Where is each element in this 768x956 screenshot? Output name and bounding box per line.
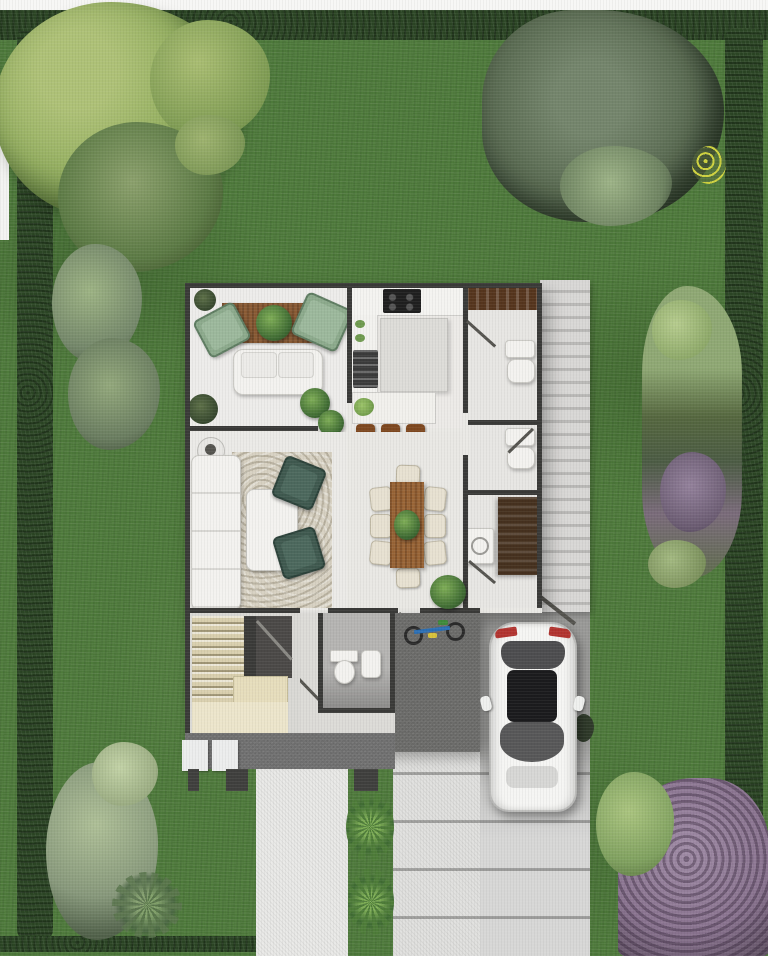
- car-sunroof: [507, 670, 557, 722]
- louvered-side-path: [540, 280, 590, 612]
- dining-centerpiece-plant: [394, 510, 420, 540]
- wall-bath-divider: [468, 420, 538, 425]
- driveway-lower: [393, 752, 480, 956]
- dining-chair-right: [423, 540, 447, 566]
- wall-utility-divider: [468, 490, 538, 495]
- yellow-flowers: [692, 146, 726, 184]
- console-shelf: [466, 288, 538, 310]
- dining-chair-left: [370, 514, 392, 538]
- herb-pot: [355, 320, 365, 328]
- herb-pot: [355, 334, 365, 342]
- powder-wall-bottom: [318, 708, 395, 713]
- porch-post: [226, 769, 248, 791]
- spiky-gray-plant: [112, 872, 182, 938]
- car-hood-shading: [506, 766, 558, 788]
- powder-sink: [361, 650, 381, 678]
- sectional-sofa: [191, 455, 241, 610]
- cooktop: [383, 289, 421, 313]
- kitchen-island: [380, 318, 448, 392]
- porch-post: [188, 769, 199, 791]
- wall-sitting-kitchen: [347, 283, 352, 403]
- powder-toilet-bowl: [334, 660, 355, 684]
- wall-kitchen-hall-upper: [463, 283, 468, 413]
- wall-right: [537, 283, 542, 608]
- sitting-room-centerpiece-plant: [256, 305, 292, 341]
- dining-chair-right: [423, 486, 447, 512]
- washer-door: [471, 537, 489, 555]
- patio-plant: [430, 575, 466, 609]
- wall-top: [185, 283, 542, 288]
- stepping-paver: [182, 740, 208, 771]
- wall-sitting-living: [190, 426, 318, 431]
- loveseat-cushion: [278, 352, 314, 378]
- bathroom-sink: [505, 340, 535, 358]
- corner-plant: [188, 394, 218, 424]
- bicycle-detail-green: [438, 620, 448, 625]
- corner-plant: [194, 289, 216, 311]
- powder-wall-left: [318, 613, 323, 713]
- loveseat-cushion: [241, 352, 277, 378]
- porch-post: [354, 769, 378, 791]
- powder-room-floor: [318, 613, 395, 713]
- bathroom-toilet: [507, 359, 535, 383]
- bicycle-detail-yellow: [428, 633, 437, 638]
- car-windshield: [500, 722, 564, 762]
- table-lamp: [205, 444, 216, 455]
- stepping-paver: [212, 740, 238, 771]
- front-walkway: [256, 766, 348, 956]
- oven: [353, 350, 378, 388]
- site-plan: [0, 0, 768, 956]
- agave-lower: [348, 868, 394, 936]
- dining-chair-bottom: [396, 568, 421, 589]
- hedge-bottom-left: [0, 936, 258, 952]
- car-rear-window: [501, 641, 565, 669]
- dining-chair-right: [424, 514, 446, 538]
- dark-vanity: [498, 497, 538, 575]
- agave-upper: [346, 792, 394, 862]
